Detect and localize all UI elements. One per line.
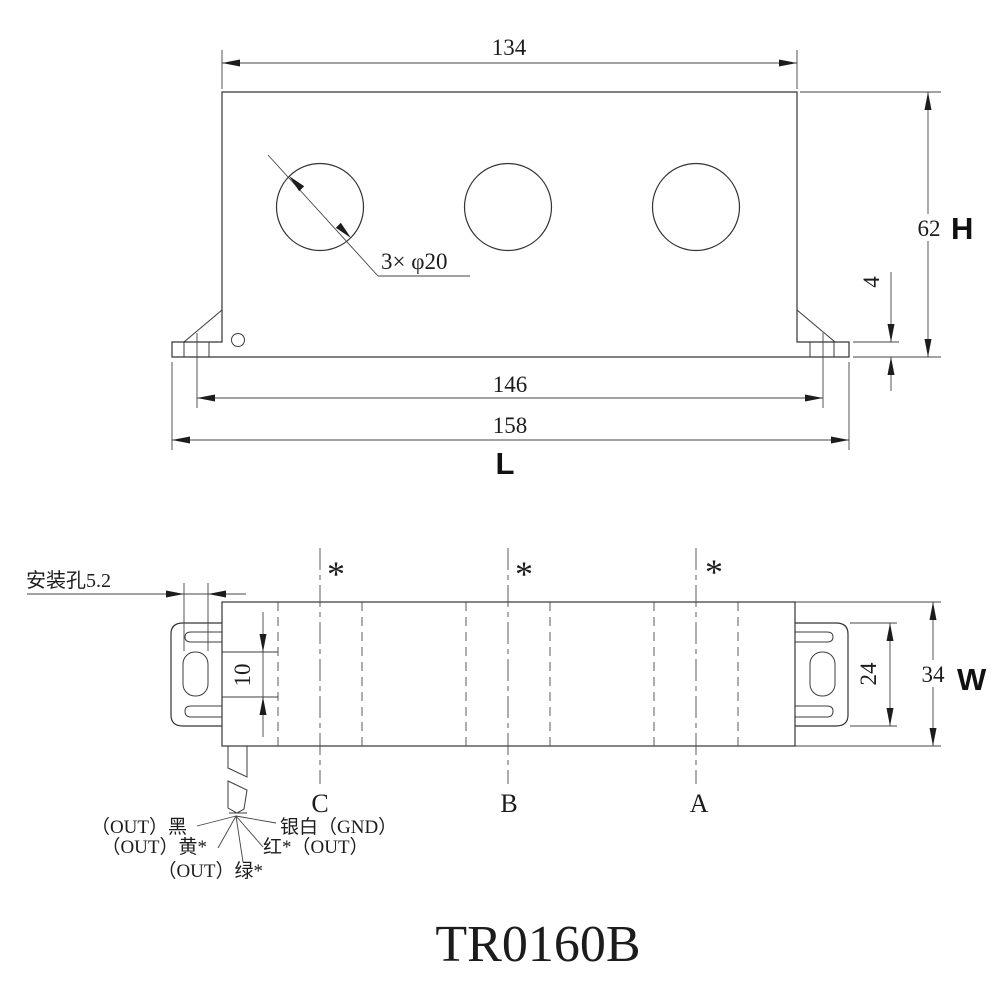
arrowhead: [805, 395, 823, 402]
right-mount-slot: [810, 652, 835, 696]
arrowhead: [888, 324, 895, 342]
arrowhead: [260, 697, 267, 715]
arrowhead: [925, 92, 932, 110]
arrowhead: [172, 437, 190, 444]
arrowhead: [831, 437, 849, 444]
length-symbol-label: L: [496, 446, 515, 481]
width-symbol-label: W: [957, 662, 987, 697]
wire-leader: [236, 816, 276, 823]
front-body-outline: [172, 92, 849, 357]
right-bracket-top-slot: [795, 632, 833, 642]
arrowhead: [888, 357, 895, 375]
arrowhead: [336, 223, 351, 238]
wire-leader: [218, 816, 236, 848]
primary-hole-b: [465, 164, 552, 251]
mount-hole-callout: 安装孔5.2: [26, 569, 246, 651]
wire-label-red: 红*（OUT）: [263, 836, 369, 858]
arrowhead: [289, 176, 304, 191]
dim-146: 146: [197, 333, 823, 408]
arrowhead: [208, 591, 226, 598]
left-bracket-bottom-slot: [185, 706, 222, 717]
arrowhead: [887, 708, 894, 726]
dim-10: 10: [222, 612, 278, 737]
dim-4-label: 4: [859, 276, 884, 288]
right-bracket-outline: [795, 623, 848, 726]
dim-146-label: 146: [493, 372, 528, 397]
right-bracket-bottom-slot: [795, 706, 833, 717]
phase-label-a: A: [690, 789, 709, 818]
left-mounting-bracket: [171, 623, 222, 726]
right-gusset-line: [797, 310, 835, 342]
wire-label-black: （OUT）黑: [91, 816, 187, 838]
front-view: 134 3× φ20 62 H 4: [172, 35, 973, 481]
asterisk-mark-c: *: [327, 554, 345, 594]
holes-note-label: 3× φ20: [381, 249, 448, 274]
asterisk-mark-b: *: [515, 554, 533, 594]
arrowhead: [930, 602, 937, 620]
primary-hole-a: [653, 164, 740, 251]
arrowhead: [779, 60, 797, 67]
drawing-sheet: 134 3× φ20 62 H 4: [0, 0, 1000, 998]
arrowhead: [197, 395, 215, 402]
cable-segment-upper: [228, 746, 247, 777]
plan-body-outline: [222, 602, 795, 746]
arrowhead: [925, 339, 932, 357]
wire-label-green: （OUT）绿*: [157, 860, 263, 882]
phase-label-b: B: [500, 789, 517, 818]
arrowhead: [887, 623, 894, 641]
asterisk-mark-a: *: [705, 552, 723, 592]
dim-10-label: 10: [230, 664, 255, 687]
dim-24-label: 24: [856, 662, 881, 686]
wire-leader: [197, 816, 236, 826]
arrowhead: [260, 634, 267, 652]
hole-diameter-callout: 3× φ20: [268, 155, 470, 276]
height-symbol-label: H: [951, 211, 973, 246]
left-mount-slot: [183, 652, 208, 696]
dim-134-label: 134: [492, 35, 527, 60]
cable-segment-lower: [228, 781, 247, 813]
arrowhead: [930, 728, 937, 746]
arrowhead: [166, 591, 184, 598]
bottom-view: * * * C B A 安装孔5.2: [26, 548, 987, 882]
right-mounting-bracket: [795, 623, 848, 726]
left-bracket-top-slot: [185, 632, 222, 642]
left-bracket-outline: [171, 623, 222, 726]
diameter-leader-line: [268, 155, 378, 276]
dim-34-label: 34: [922, 662, 946, 687]
mount-hole-label: 安装孔5.2: [26, 569, 111, 592]
arrowhead: [222, 60, 240, 67]
part-number-title: TR0160B: [435, 916, 640, 973]
wire-label-silver: 银白（GND）: [280, 816, 397, 838]
dim-24: 24: [850, 623, 897, 726]
dim-134: 134: [222, 35, 797, 89]
small-face-hole: [232, 334, 245, 347]
dim-62: 62 H: [800, 92, 973, 357]
engineering-drawing: 134 3× φ20 62 H 4: [0, 0, 1000, 998]
dim-62-label: 62: [918, 216, 941, 241]
wire-label-yellow: （OUT）黄*: [101, 836, 207, 858]
dim-158-label: 158: [493, 413, 528, 438]
phase-label-c: C: [311, 789, 328, 818]
dim-4: 4: [853, 272, 899, 391]
left-gusset-line: [184, 310, 222, 342]
